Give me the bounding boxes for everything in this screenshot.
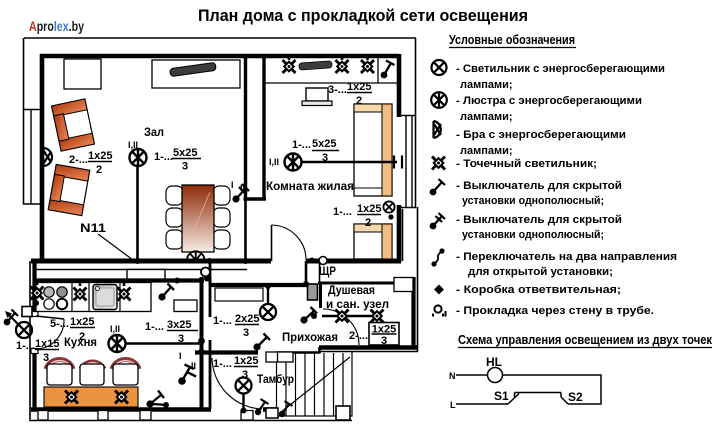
svg-text:и сан. узел: и сан. узел: [326, 297, 389, 311]
svg-text:I,II: I,II: [128, 140, 138, 150]
svg-text:I,II: I,II: [110, 324, 120, 334]
svg-text:Тамбур: Тамбур: [257, 372, 294, 386]
svg-text:II: II: [191, 361, 196, 371]
svg-text:3: 3: [381, 335, 387, 347]
svg-text:2x25: 2x25: [235, 313, 259, 325]
svg-text:Зал: Зал: [144, 125, 164, 139]
svg-text:- Прокладка через стену в труб: - Прокладка через стену в трубе.: [456, 305, 654, 317]
svg-text:I: I: [179, 351, 182, 361]
svg-text:1-...: 1-...: [213, 315, 232, 327]
svg-text:I,II: I,II: [269, 157, 279, 167]
svg-text:1x25: 1x25: [88, 150, 112, 162]
svg-text:S1: S1: [494, 389, 509, 403]
svg-text:- Коробка ответвительная;: - Коробка ответвительная;: [456, 284, 621, 296]
svg-text:лампами;: лампами;: [460, 79, 513, 91]
svg-text:5-...: 5-...: [50, 318, 69, 330]
svg-text:- Бра с энергосберегающими: - Бра с энергосберегающими: [456, 129, 626, 141]
svg-text:1-...: 1-...: [145, 321, 164, 333]
svg-text:3: 3: [242, 369, 248, 381]
svg-text:Схема управления освещением из: Схема управления освещением из двух точе…: [458, 333, 713, 347]
svg-text:1x25: 1x25: [70, 316, 94, 328]
svg-text:5x25: 5x25: [173, 147, 197, 159]
svg-text:Кухня: Кухня: [64, 335, 97, 349]
svg-text:Прихожая: Прихожая: [282, 330, 338, 344]
svg-text:5x25: 5x25: [312, 138, 336, 150]
svg-text:2: 2: [356, 95, 362, 107]
svg-text:3x25: 3x25: [167, 319, 191, 331]
svg-text:План дома с прокладкой сети ос: План дома с прокладкой сети освещения: [198, 6, 528, 25]
svg-text:- Точечный светильник;: - Точечный светильник;: [456, 158, 597, 170]
svg-text:2-...: 2-...: [69, 154, 88, 166]
svg-text:- Переключатель на два направл: - Переключатель на два направления: [456, 251, 677, 263]
svg-text:2-...: 2-...: [349, 330, 368, 342]
svg-text:Душевая: Душевая: [328, 283, 375, 297]
svg-text:N: N: [449, 371, 456, 381]
svg-text:1-...: 1-...: [292, 139, 311, 151]
svg-text:- Выключатель для скрытой: - Выключатель для скрытой: [456, 180, 622, 192]
svg-text:ЩР: ЩР: [319, 264, 336, 278]
svg-text:L: L: [450, 400, 456, 410]
svg-text:1x25: 1x25: [357, 203, 381, 215]
svg-text:1-...: 1-...: [333, 206, 352, 218]
svg-text:установки однополюсный;: установки однополюсный;: [462, 229, 604, 241]
svg-text:лампами;: лампами;: [460, 111, 513, 123]
svg-text:2: 2: [365, 217, 371, 229]
svg-text:Условные обозначения: Условные обозначения: [449, 33, 575, 47]
svg-text:для открытой установки;: для открытой установки;: [468, 266, 613, 278]
svg-text:II: II: [240, 183, 245, 193]
svg-text:Комната жилая: Комната жилая: [266, 179, 354, 193]
svg-text:1x15: 1x15: [35, 338, 59, 350]
svg-text:3: 3: [43, 352, 49, 364]
svg-text:лампами;: лампами;: [460, 145, 513, 157]
svg-text:- Люстра с энергосберегающими: - Люстра с энергосберегающими: [456, 95, 642, 107]
svg-text:3: 3: [182, 161, 188, 173]
svg-text:3-...: 3-...: [328, 84, 347, 96]
svg-text:3: 3: [322, 152, 328, 164]
svg-text:N11: N11: [80, 221, 106, 235]
svg-text:S2: S2: [568, 390, 583, 404]
svg-text:2: 2: [96, 164, 102, 176]
svg-text:3: 3: [178, 333, 184, 345]
svg-text:установки однополюсный;: установки однополюсный;: [462, 195, 604, 207]
svg-text:- Выключатель для скрытой: - Выключатель для скрытой: [456, 214, 622, 226]
svg-text:1-...: 1-...: [154, 151, 173, 163]
svg-text:Aprolex.by: Aprolex.by: [29, 18, 84, 34]
svg-text:I: I: [231, 180, 234, 190]
svg-text:1x25: 1x25: [234, 355, 258, 367]
svg-text:1x25: 1x25: [347, 81, 371, 93]
svg-text:1-...: 1-...: [213, 358, 232, 370]
svg-text:3: 3: [243, 327, 249, 339]
svg-text:1-...: 1-...: [16, 340, 35, 352]
svg-text:- Светильник с энергосберегающ: - Светильник с энергосберегающими: [456, 63, 665, 75]
